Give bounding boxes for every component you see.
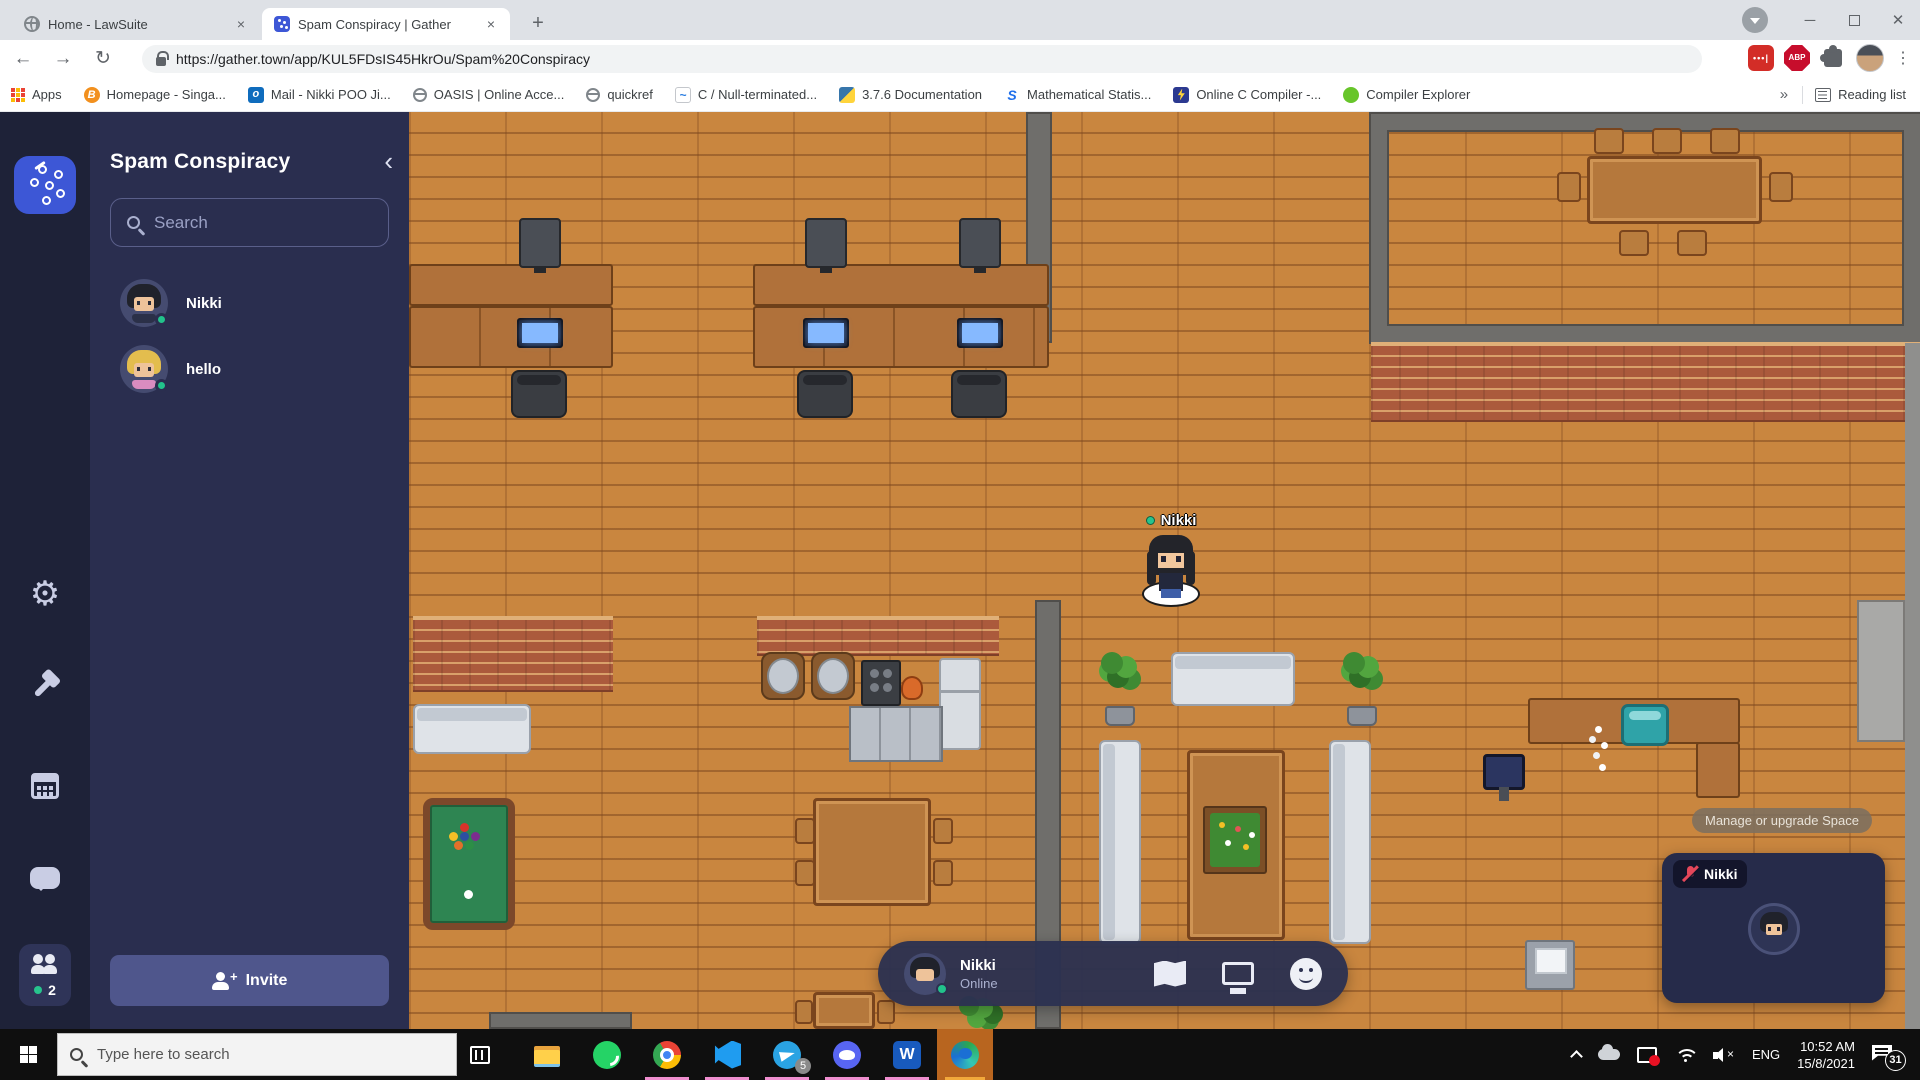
reading-list-icon [1815,88,1831,102]
invite-label: Invite [246,972,288,990]
taskbar-search-input[interactable] [95,1045,425,1064]
language-indicator[interactable]: ENG [1752,1047,1780,1062]
window-controls: ─ ✕ [1742,0,1920,40]
chat-icon[interactable] [0,850,90,906]
wall-right-column [1905,343,1920,1029]
player-character: Nikki [1119,512,1223,607]
couch-top [1171,652,1295,706]
file-explorer-icon [533,1041,561,1069]
screen: Home - LawSuite × Spam Conspiracy | Gath… [0,0,1920,1080]
adblock-icon[interactable]: ABP [1784,45,1810,71]
gather-rail: ⚙ 2 [0,112,90,1029]
build-hammer-icon[interactable] [0,660,90,716]
conf-chair-3 [1710,128,1740,154]
player-identity[interactable]: Nikki Online [960,957,998,991]
brick-wall-mid [757,616,999,656]
reading-list-button[interactable]: Reading list [1807,87,1920,102]
ce-favicon [1343,87,1359,103]
apps-shortcut[interactable]: Apps [0,87,73,102]
taskbar-app-word[interactable]: W [877,1029,937,1080]
lock-icon[interactable] [156,57,166,66]
flower-planter [1203,806,1267,874]
bookmark-item[interactable]: quickref [575,87,664,102]
bookmark-item[interactable]: ~C / Null-terminated... [664,87,828,103]
new-tab-button[interactable]: + [524,10,552,38]
dining-chair-3 [933,818,953,844]
search-input[interactable] [152,212,352,234]
online-count: 2 [19,982,71,998]
edge-icon [951,1041,979,1069]
discord-icon [833,1041,861,1069]
windows-logo-icon [20,1046,37,1063]
conference-room-walls [1371,114,1920,342]
small-table [813,992,875,1029]
member-name: hello [186,361,221,378]
taskbar-clock[interactable]: 10:52 AM 15/8/2021 [1797,1038,1855,1072]
task-view-icon [470,1046,490,1064]
aquarium [1621,704,1669,746]
bookmark-label: Homepage - Singa... [107,87,226,102]
member-avatar [120,345,168,393]
taskbar-apps: 5W [517,1029,993,1080]
whatsapp-icon [593,1041,621,1069]
onedrive-icon[interactable] [1598,1049,1620,1060]
orange-b-favicon: B [84,87,100,103]
reading-list-label: Reading list [1838,87,1906,102]
restore-icon [1849,15,1860,26]
desk-a-bottom [409,306,613,368]
clock-date: 15/8/2021 [1797,1055,1855,1072]
player-status-dot [1146,516,1155,525]
kitchen-round-table-1 [761,652,805,700]
collapse-chevron-icon[interactable]: ‹ [384,146,393,177]
bookmark-item[interactable]: oMail - Nikki POO Ji... [237,87,402,103]
bookmarks-bar: Apps BHomepage - Singa...oMail - Nikki P… [0,78,1920,112]
control-bar-name: Nikki [960,957,998,974]
couch-side-1 [1099,740,1141,944]
bookmarks-overflow-icon[interactable]: » [1770,86,1798,103]
tooltip: Manage or upgrade Space [1692,808,1872,833]
outlook-favicon: o [248,87,264,103]
monitor-a [519,218,561,268]
screen-a [517,318,563,348]
gather-panel: Spam Conspiracy ‹ Nikkihello + Invite [90,112,409,1029]
small-chair-2 [877,1000,895,1024]
control-bar-status: Online [960,976,998,991]
url-text: https://gather.town/app/KUL5FDsIS45HkrOu… [176,51,590,67]
calendar-icon[interactable] [0,758,90,814]
close-button[interactable]: ✕ [1876,0,1920,40]
volume-muted-icon[interactable]: × [1713,1047,1735,1063]
tab-close-icon[interactable]: × [482,15,500,33]
couch-side-2 [1329,740,1371,944]
member-avatar [120,279,168,327]
wall-bottom-left [489,1012,632,1029]
wifi-icon[interactable] [1674,1047,1696,1063]
dining-table [813,798,931,906]
conf-chair-7 [1677,230,1707,256]
conf-chair-1 [1594,128,1624,154]
lastpass-icon[interactable]: •••| [1748,45,1774,71]
dining-chair-4 [933,860,953,886]
notification-count-badge: 31 [1885,1050,1906,1071]
cooking-pot [901,676,923,700]
couch-left [413,704,531,754]
globe-favicon [24,16,40,32]
bookmark-item[interactable]: BHomepage - Singa... [73,87,237,103]
taskbar-app-discord[interactable] [817,1029,877,1080]
member-row-hello[interactable]: hello [90,336,409,402]
emote-smiley-icon[interactable] [1290,958,1322,990]
task-view-button[interactable] [457,1029,503,1080]
globe-favicon [586,88,600,102]
people-icon [31,954,61,978]
reception-flowers [1585,718,1611,780]
chair-b2 [951,370,1007,418]
screen-b2 [957,318,1003,348]
bookmark-label: 3.7.6 Documentation [862,87,982,102]
wall-reception-right [1857,600,1905,742]
invite-button[interactable]: + Invite [110,955,389,1006]
vscode-icon [713,1041,741,1069]
self-video-panel[interactable]: Nikki [1662,853,1885,1003]
app-badge: 5 [795,1058,811,1074]
chair-b1 [797,370,853,418]
start-button[interactable] [0,1029,57,1080]
caret-down-icon[interactable] [1742,7,1768,33]
desk-b-bottom [753,306,1049,368]
tab-spam-conspiracy[interactable]: Spam Conspiracy | Gather × [262,8,510,40]
map-objects [409,112,1920,174]
taskbar-app-telegram[interactable]: 5 [757,1029,817,1080]
reception-monitor [1483,754,1525,790]
taskbar-app-chrome[interactable] [637,1029,697,1080]
control-bar: Nikki Online [878,941,1348,1006]
conf-chair-5 [1557,172,1581,202]
search-icon [70,1048,83,1061]
conf-chair-6 [1619,230,1649,256]
brick-wall-right [1371,342,1920,422]
kitchen-counter [849,706,943,762]
bookmark-label: OASIS | Online Acce... [434,87,565,102]
browser-menu-icon[interactable]: ⋮ [1894,48,1912,68]
bookmark-item[interactable]: Online C Compiler -... [1162,87,1332,103]
reception-desk-side [1696,742,1740,798]
online-count-value: 2 [48,982,56,998]
word-icon: W [893,1041,921,1069]
monitor-b1 [805,218,847,268]
conf-chair-2 [1652,128,1682,154]
tray-expand-chevron-icon[interactable] [1570,1050,1583,1063]
bookmark-item[interactable]: SMathematical Statis... [993,87,1162,103]
system-tray: × ENG 10:52 AM 15/8/2021 31 [1572,1038,1920,1072]
search-icon [127,216,140,229]
screen-b1 [803,318,849,348]
taskbar-app-file-explorer[interactable] [517,1029,577,1080]
dining-chair-2 [795,860,815,886]
status-dot [936,983,948,995]
display-connect-icon[interactable] [1637,1047,1657,1063]
settings-gear-icon[interactable]: ⚙ [0,566,90,622]
fridge [939,658,981,750]
member-list: Nikkihello [90,270,409,402]
bookmark-label: Online C Compiler -... [1196,87,1321,102]
reload-button[interactable]: ↻ [86,44,120,74]
action-center-icon[interactable]: 31 [1872,1045,1896,1065]
screenshare-icon[interactable] [1222,962,1254,985]
bookmark-label: Compiler Explorer [1366,87,1470,102]
tab-title: Spam Conspiracy | Gather [298,17,451,32]
extensions-puzzle-icon[interactable] [1824,49,1842,67]
stove [861,660,901,706]
tab-home-lawsuite[interactable]: Home - LawSuite × [12,8,260,40]
apps-label: Apps [32,87,62,102]
restore-button[interactable] [1832,0,1876,40]
tab-title: Home - LawSuite [48,17,148,32]
plant-2 [1337,652,1385,726]
laptop-desk [1525,940,1575,990]
control-bar-icons [1154,958,1322,990]
divider [1802,86,1803,104]
brick-wall-left [413,616,613,692]
participants-button[interactable]: 2 [19,944,71,1006]
invite-person-icon: + [212,972,234,990]
online-dot [34,986,42,994]
bookmark-item[interactable]: Compiler Explorer [1332,87,1481,103]
bookmark-item[interactable]: 3.7.6 Documentation [828,87,993,103]
globe-favicon [413,88,427,102]
control-bar-avatar[interactable] [904,953,946,995]
member-search[interactable] [110,198,389,247]
video-name-tag: Nikki [1673,860,1747,888]
plant-1 [1095,652,1143,726]
taskbar: 5W × ENG 10:52 AM 15/8/2021 31 [0,1029,1920,1080]
address-bar[interactable]: https://gather.town/app/KUL5FDsIS45HkrOu… [142,45,1702,73]
browser-tab-strip: Home - LawSuite × Spam Conspiracy | Gath… [0,0,1920,40]
forward-button[interactable]: → [46,44,80,74]
player-sprite [1147,535,1195,607]
back-button[interactable]: ← [6,44,40,74]
bookmark-label: Mail - Nikki POO Ji... [271,87,391,102]
tab-close-icon[interactable]: × [232,15,250,33]
bookmark-list: BHomepage - Singa...oMail - Nikki POO Ji… [73,87,1482,103]
chair-a [511,370,567,418]
minimize-button[interactable]: ─ [1788,0,1832,40]
player-nametag: Nikki [1119,512,1223,529]
video-name: Nikki [1704,866,1737,882]
taskbar-app-edge[interactable] [937,1029,993,1080]
bolt-favicon [1173,87,1189,103]
kitchen-round-table-2 [811,652,855,700]
dining-chair-1 [795,818,815,844]
mic-muted-icon [1683,865,1697,883]
member-name: Nikki [186,295,222,312]
space-name: Spam Conspiracy [110,150,290,174]
extensions-row: •••| ABP ⋮ [1748,44,1912,72]
bookmark-label: C / Null-terminated... [698,87,817,102]
taskbar-app-vscode[interactable] [697,1029,757,1080]
chrome-icon [653,1041,681,1069]
small-chair-1 [795,1000,813,1024]
bookmark-item[interactable]: OASIS | Online Acce... [402,87,576,102]
monitor-b2 [959,218,1001,268]
apps-grid-icon [11,88,25,102]
hammer-icon [28,671,62,705]
minimap-icon[interactable] [1154,961,1186,987]
conference-table [1587,156,1762,224]
browser-toolbar: ← → ↻ https://gather.town/app/KUL5FDsIS4… [0,40,1920,78]
taskbar-search[interactable] [57,1033,457,1076]
profile-avatar[interactable] [1856,44,1884,72]
sblue-favicon: S [1004,87,1020,103]
code-favicon: ~ [675,87,691,103]
bookmark-label: quickref [607,87,653,102]
python-favicon [839,87,855,103]
desk-a-top [409,264,613,306]
pool-table [423,798,515,930]
bookmark-label: Mathematical Statis... [1027,87,1151,102]
conf-chair-4 [1769,172,1793,202]
player-name: Nikki [1161,512,1197,529]
gather-favicon [274,16,290,32]
desk-b-top [753,264,1049,306]
taskbar-app-whatsapp[interactable] [577,1029,637,1080]
member-row-Nikki[interactable]: Nikki [90,270,409,336]
gather-logo[interactable] [14,156,76,214]
video-avatar [1748,903,1800,955]
clock-time: 10:52 AM [1797,1038,1855,1055]
